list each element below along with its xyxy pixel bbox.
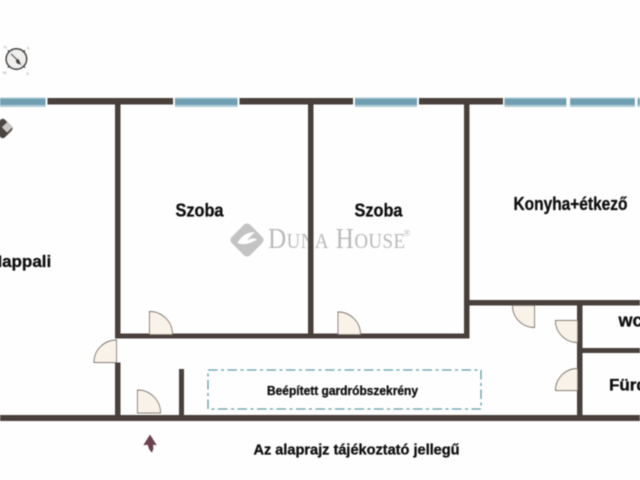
svg-text:E: E: [27, 45, 30, 50]
svg-text:Beépített gardróbszekrény: Beépített gardróbszekrény: [267, 383, 419, 398]
svg-text:N: N: [4, 45, 7, 50]
svg-text:Fürdő: Fürdő: [609, 376, 640, 395]
svg-text:W: W: [3, 70, 7, 75]
svg-text:Konyha+étkező: Konyha+étkező: [514, 194, 628, 214]
svg-text:wc: wc: [618, 311, 640, 331]
svg-text:S: S: [26, 71, 29, 76]
svg-text:Szoba: Szoba: [355, 201, 404, 221]
svg-text:Az alaprajz tájékoztató jelleg: Az alaprajz tájékoztató jellegű: [254, 443, 460, 459]
svg-text:Szoba: Szoba: [176, 201, 225, 221]
svg-text:Nappali: Nappali: [0, 252, 51, 271]
svg-text:®: ®: [404, 228, 411, 238]
